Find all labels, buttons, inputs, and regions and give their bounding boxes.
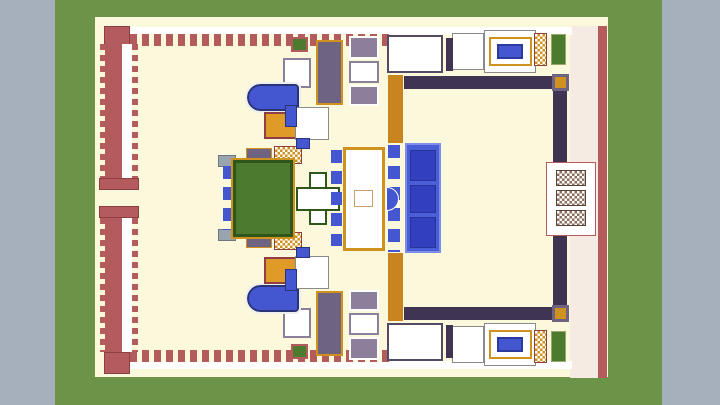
octagon-medallion-room-mirror [283, 308, 311, 338]
east-gate-middle [556, 190, 586, 206]
fountain-tile-mirror [349, 313, 379, 335]
fountain-court [295, 107, 329, 140]
west-gate-south-cap [99, 206, 139, 218]
mosaic-tile-north [349, 36, 379, 59]
blue-cistern-mirror [285, 269, 297, 291]
plaza-blue-tab [296, 138, 310, 149]
north-wall-checker-band [130, 27, 392, 34]
colonnade-north-row-mirror [404, 307, 554, 320]
bath-pool [497, 44, 523, 59]
audience-hall-dais [354, 190, 373, 207]
carpet-panel-north [410, 150, 436, 181]
bath-pool-mirror [497, 337, 523, 352]
purple-gallery-mirror [316, 291, 343, 356]
southwest-corner-tower [104, 352, 130, 374]
pavilion-stud-column [446, 38, 453, 71]
antechamber [452, 33, 484, 70]
east-wall-edge [598, 26, 607, 378]
mosaic-tile-south-mirror [349, 290, 379, 311]
green-roof-patch-mirror [291, 344, 308, 359]
colonnade-east-row-mirror [553, 233, 567, 305]
colonnade-north-corner [552, 74, 569, 91]
plaza-blue-tab-mirror [296, 247, 310, 258]
fountain-tile [349, 61, 379, 83]
east-gate-south [556, 210, 586, 226]
mosaic-tile-south [349, 85, 379, 106]
pillar-row-west [331, 150, 342, 246]
colonnade-north-row [404, 76, 554, 89]
gold-checker-tower-mirror [534, 330, 547, 363]
blue-cistern [285, 105, 297, 127]
sunken-garden [233, 160, 293, 237]
west-walkway-lower [122, 218, 132, 352]
garden-bed-east [551, 34, 566, 65]
gold-gallery-strip-mirror [388, 253, 403, 321]
mosaic-tile-north-mirror [349, 337, 379, 360]
antechamber-mirror [452, 326, 484, 363]
purple-gallery [316, 40, 343, 105]
model-viewport[interactable] [0, 0, 720, 405]
carpet-panel-middle [410, 185, 436, 213]
east-gate-north [556, 170, 586, 186]
fountain-court-mirror [295, 256, 329, 289]
garden-bed-east-mirror [551, 331, 566, 362]
pillared-hall-mosaic [397, 44, 433, 64]
pillared-hall-mosaic-mirror [397, 332, 433, 352]
carpet-panel-south [410, 217, 436, 248]
colonnade-east-row [553, 91, 567, 163]
west-walkway-upper [122, 44, 132, 178]
gold-checker-tower [534, 33, 547, 66]
colonnade-north-corner-mirror [552, 305, 569, 322]
green-roof-patch [291, 37, 308, 52]
west-wall-dashes-upper [132, 44, 138, 178]
gold-gallery-strip [388, 75, 403, 143]
north-wall-checker-band-mirror [130, 362, 392, 369]
pavilion-stud-column-mirror [446, 325, 453, 358]
west-wall-upper [105, 44, 122, 178]
west-gate-north-cap [99, 178, 139, 190]
west-wall-dashes-lower [132, 218, 138, 352]
west-wall-lower [105, 218, 122, 352]
